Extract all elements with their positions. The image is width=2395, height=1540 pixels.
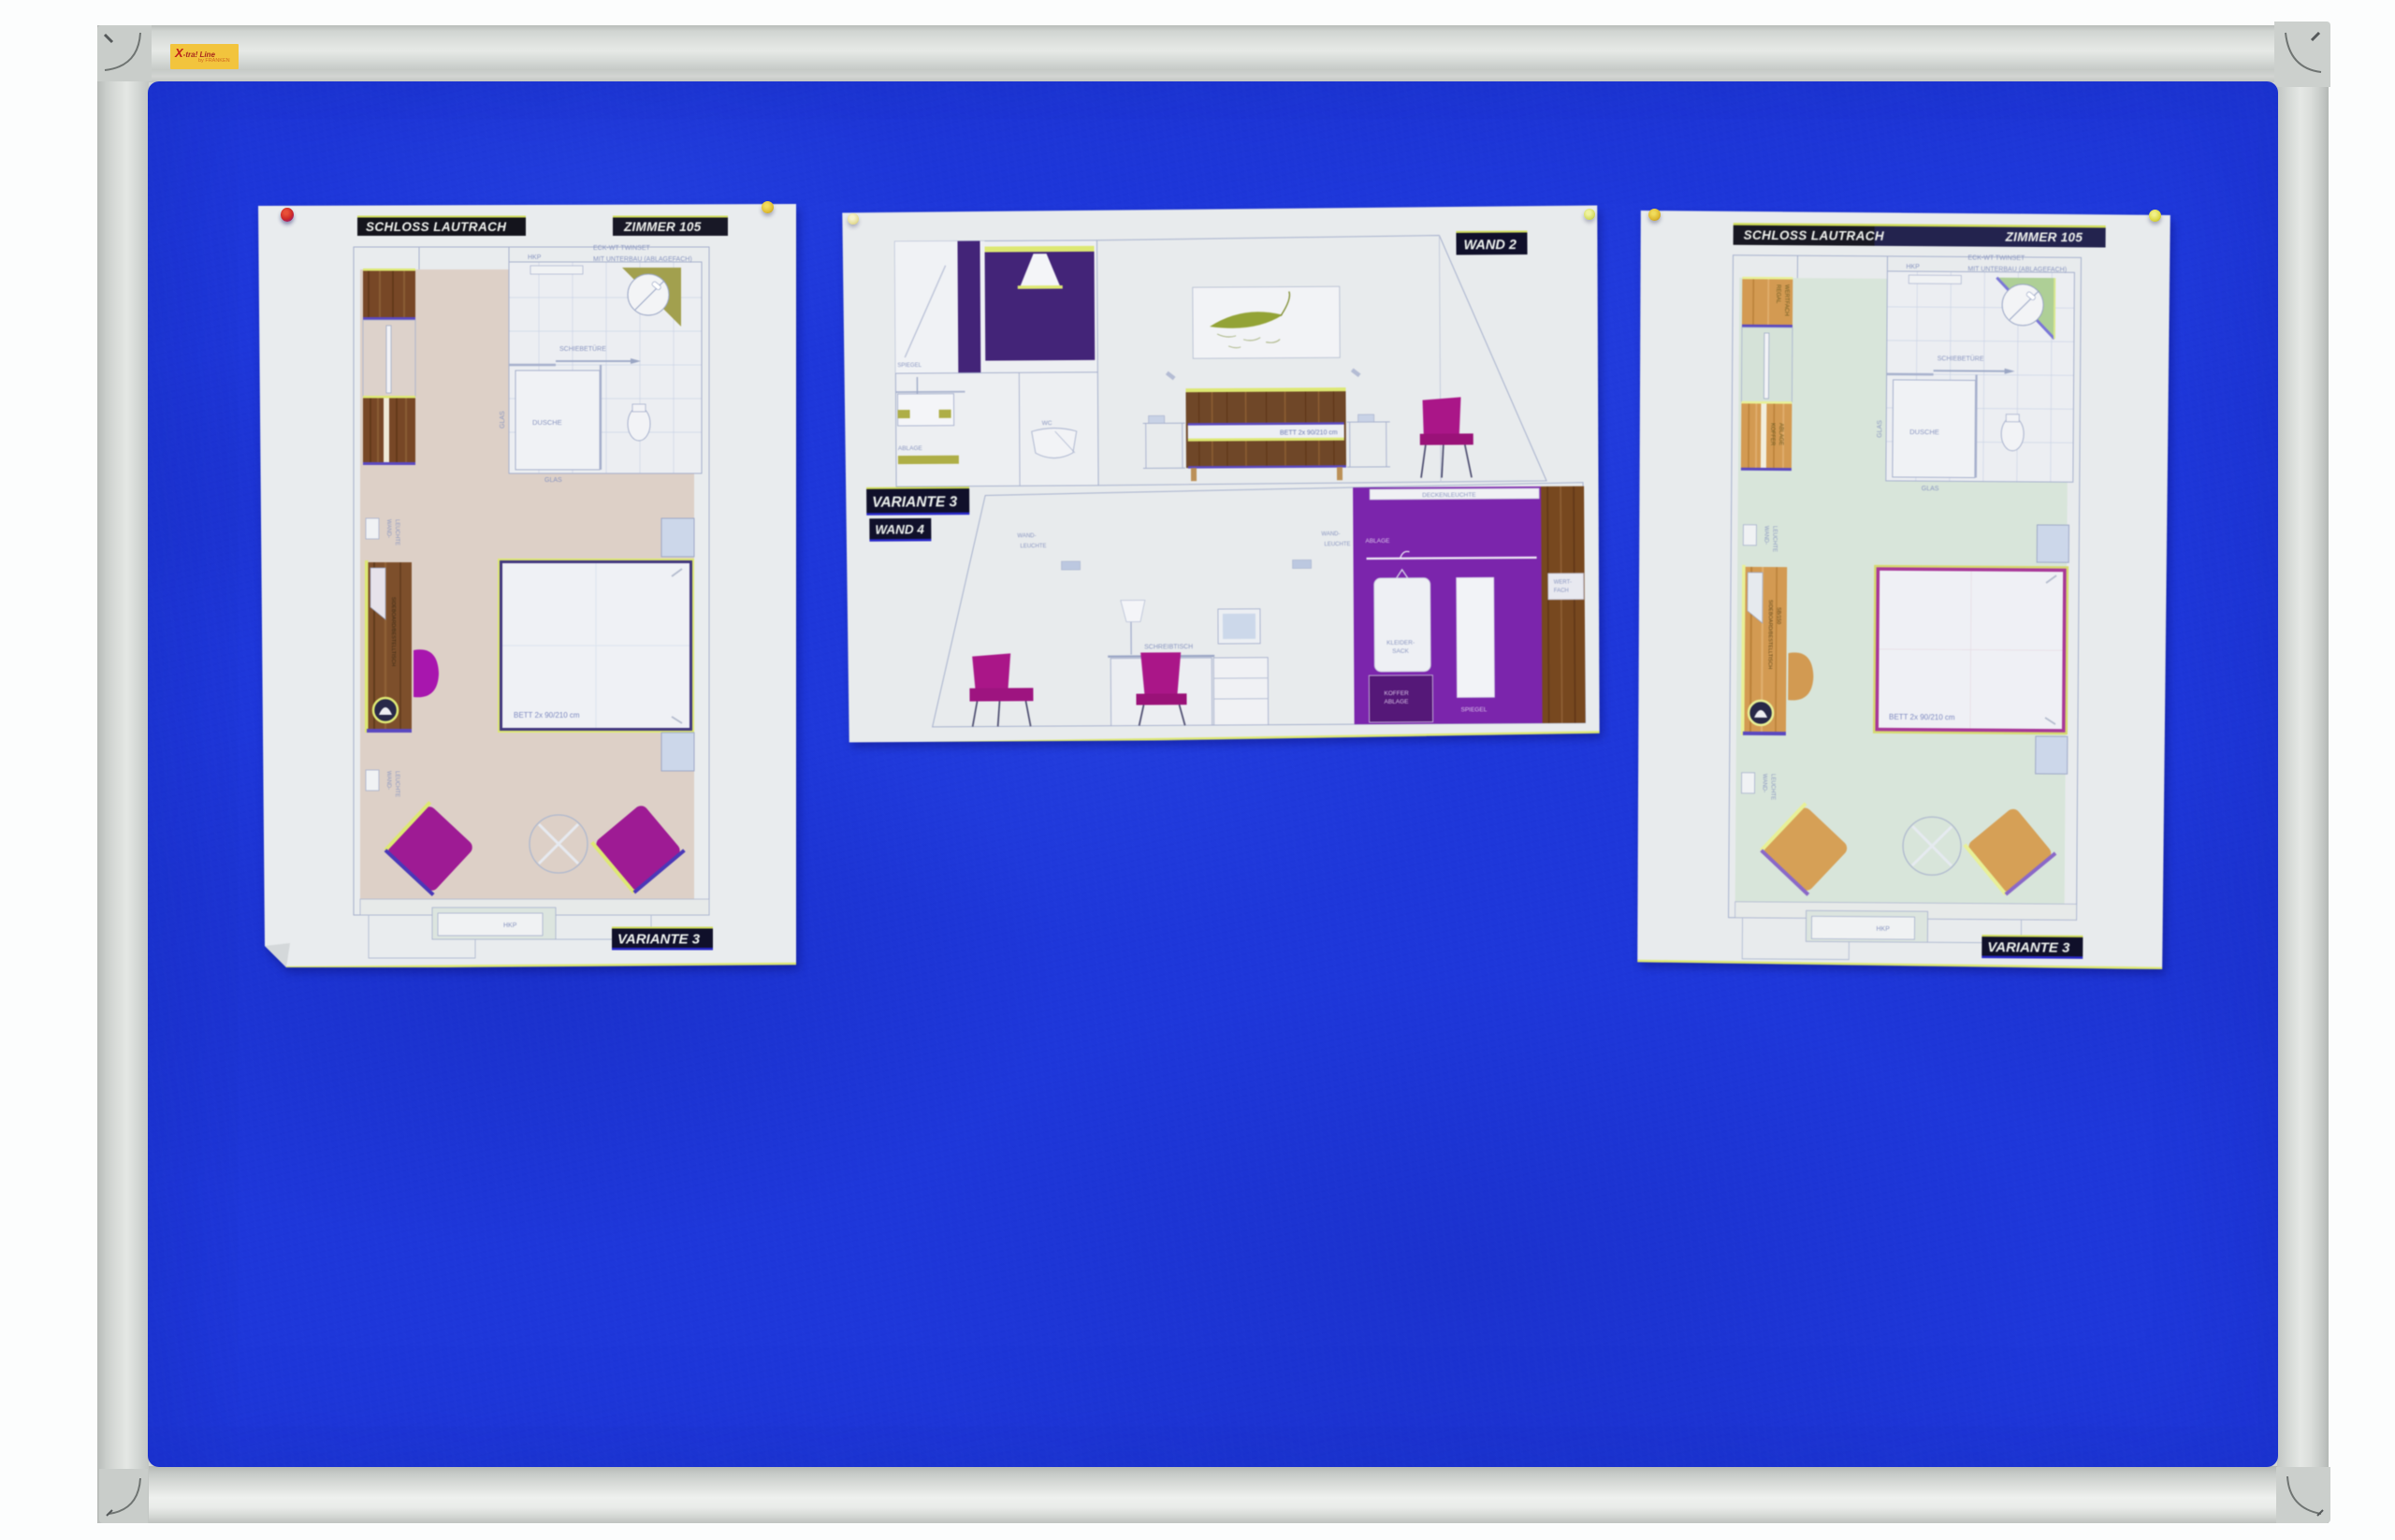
svg-text:SCHLOSS LAUTRACH: SCHLOSS LAUTRACH	[1744, 228, 1885, 243]
svg-text:WAND-: WAND-	[1017, 533, 1036, 539]
svg-text:LEUCHTE: LEUCHTE	[394, 519, 399, 545]
svg-text:WAND-: WAND-	[1321, 531, 1340, 537]
svg-text:ABLAGE: ABLAGE	[1365, 538, 1390, 545]
svg-text:WERT-: WERT-	[1554, 580, 1572, 586]
svg-text:ABLAGE: ABLAGE	[1384, 699, 1409, 705]
svg-text:WC: WC	[1042, 420, 1052, 427]
svg-text:WAND 2: WAND 2	[1463, 238, 1517, 253]
svg-text:SACK: SACK	[1392, 648, 1409, 655]
svg-text:LEUCHTE: LEUCHTE	[1771, 526, 1777, 552]
svg-text:SCHLOSS LAUTRACH: SCHLOSS LAUTRACH	[366, 220, 506, 234]
svg-text:MIT UNTERBAU (ABLAGEFACH): MIT UNTERBAU (ABLAGEFACH)	[593, 256, 692, 263]
svg-text:VARIANTE 3: VARIANTE 3	[1987, 939, 2070, 956]
svg-text:SCHIEBETÜRE: SCHIEBETÜRE	[1938, 355, 1984, 362]
svg-text:HKP: HKP	[503, 923, 517, 929]
svg-text:BETT 2x 90/210 cm: BETT 2x 90/210 cm	[514, 711, 580, 719]
svg-text:DECKENLEUCHTE: DECKENLEUCHTE	[1422, 492, 1476, 499]
svg-text:WAND-: WAND-	[385, 771, 391, 790]
svg-text:ECK-WT TWINSET: ECK-WT TWINSET	[593, 245, 651, 252]
svg-text:SIDEBOARD/BESTELLTISCH: SIDEBOARD/BESTELLTISCH	[1766, 600, 1773, 669]
svg-text:SIDEBOARD/BESTELLTISCH: SIDEBOARD/BESTELLTISCH	[390, 597, 396, 666]
svg-text:REGAL: REGAL	[1775, 284, 1780, 304]
svg-text:WAND 4: WAND 4	[875, 522, 924, 536]
svg-text:GLAS: GLAS	[1922, 486, 1939, 492]
svg-text:KOFFER: KOFFER	[1384, 690, 1409, 697]
svg-text:HKP: HKP	[1906, 264, 1920, 270]
svg-text:DUSCHE: DUSCHE	[1909, 428, 1939, 436]
svg-text:ABLAGE: ABLAGE	[1778, 423, 1783, 445]
svg-text:LEUCHTE: LEUCHTE	[394, 771, 399, 797]
svg-text:KOFFER: KOFFER	[1769, 423, 1775, 446]
svg-text:GLAS: GLAS	[1877, 420, 1883, 438]
svg-text:ZIMMER 105: ZIMMER 105	[2005, 230, 2083, 245]
svg-text:VARIANTE 3: VARIANTE 3	[617, 932, 701, 948]
svg-text:ZIMMER 105: ZIMMER 105	[623, 220, 702, 234]
svg-text:FACH: FACH	[1554, 588, 1569, 594]
svg-text:MIT UNTERBAU (ABLAGEFACH): MIT UNTERBAU (ABLAGEFACH)	[1967, 266, 2067, 273]
svg-text:SB/150: SB/150	[1776, 607, 1781, 624]
svg-text:BETT 2x 90/210 cm: BETT 2x 90/210 cm	[1280, 429, 1338, 436]
svg-text:ABLAGE: ABLAGE	[898, 445, 923, 452]
svg-text:ECK-WT TWINSET: ECK-WT TWINSET	[1967, 254, 2025, 261]
svg-text:GLAS: GLAS	[500, 411, 506, 429]
svg-text:LEUCHTE: LEUCHTE	[1769, 774, 1775, 800]
svg-text:WAND-: WAND-	[385, 519, 391, 538]
svg-text:SCHREIBTISCH: SCHREIBTISCH	[1144, 644, 1193, 650]
svg-text:LEUCHTE: LEUCHTE	[1020, 544, 1046, 549]
svg-text:WERTFACH: WERTFACH	[1783, 284, 1789, 316]
svg-text:DUSCHE: DUSCHE	[532, 418, 562, 427]
svg-text:WAND-: WAND-	[1763, 526, 1768, 545]
svg-text:LEUCHTE: LEUCHTE	[1324, 542, 1350, 547]
svg-text:HKP: HKP	[1876, 926, 1890, 933]
svg-text:KLEIDER-: KLEIDER-	[1386, 640, 1415, 647]
svg-text:VARIANTE 3: VARIANTE 3	[872, 494, 957, 511]
svg-text:GLAS: GLAS	[544, 477, 562, 484]
svg-text:BETT 2x 90/210 cm: BETT 2x 90/210 cm	[1889, 713, 1955, 721]
svg-text:WAND-: WAND-	[1761, 774, 1766, 792]
svg-text:SPIEGEL: SPIEGEL	[897, 363, 922, 369]
svg-text:HKP: HKP	[528, 254, 542, 261]
svg-text:SCHIEBETÜRE: SCHIEBETÜRE	[559, 345, 606, 353]
svg-text:SPIEGEL: SPIEGEL	[1461, 706, 1488, 713]
